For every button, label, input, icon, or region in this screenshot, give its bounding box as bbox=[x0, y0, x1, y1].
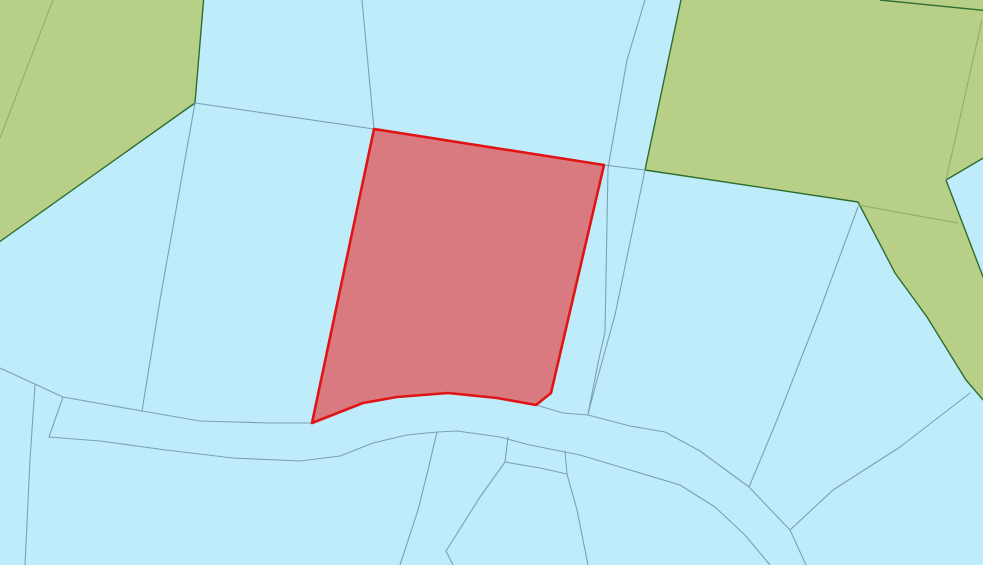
map-viewport bbox=[0, 0, 983, 565]
parcel-map-canvas[interactable] bbox=[0, 0, 983, 565]
